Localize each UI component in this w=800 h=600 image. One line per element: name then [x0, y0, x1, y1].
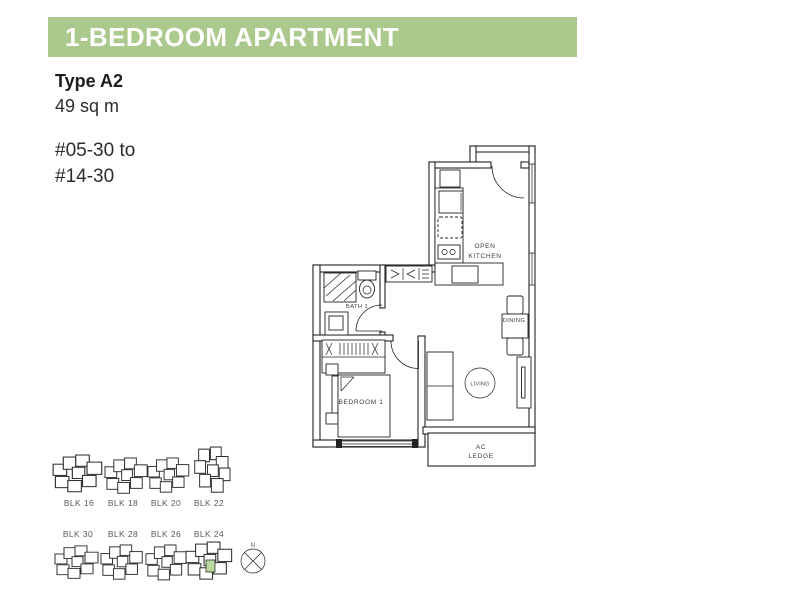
tv-console [517, 357, 531, 408]
room-label-bedroom: BEDROOM 1 [339, 399, 384, 406]
compass-north-label: N [251, 543, 256, 549]
block-label-blk-28: BLK 28 [108, 529, 138, 539]
room-label-kitchen-2: KITCHEN [468, 253, 501, 260]
room-label-living: LIVING [470, 382, 489, 388]
brochure-page: 1-BEDROOM APARTMENT Type A2 49 sq m #05-… [0, 0, 800, 600]
block-label-blk-30: BLK 30 [63, 529, 93, 539]
block-label-blk-20: BLK 20 [151, 498, 181, 508]
block-icon-blk-16 [53, 455, 102, 492]
toilet [358, 271, 376, 298]
block-label-blk-18: BLK 18 [108, 498, 138, 508]
block-icon-blk-18 [105, 458, 147, 493]
room-label-ac-2: LEDGE [468, 453, 493, 460]
entry-door [492, 166, 524, 198]
site-map: BLK 16 BLK 18 BLK 20 BLK 22 BLK 30 BLK 2… [40, 438, 290, 598]
room-label-bath: BATH 1 [346, 304, 368, 310]
dining-set [502, 296, 528, 355]
unit-range-line1: #05-30 to [55, 140, 135, 162]
bath-sink [325, 312, 348, 335]
block-icon-blk-30 [55, 546, 98, 578]
storage-cabinet [427, 352, 453, 420]
block-label-blk-24: BLK 24 [194, 529, 224, 539]
block-label-blk-26: BLK 26 [151, 529, 181, 539]
kitchen-counter [435, 170, 503, 285]
unit-area: 49 sq m [55, 96, 119, 117]
page-title: 1-BEDROOM APARTMENT [65, 22, 399, 52]
floor-plan: OPEN KITCHEN BATH 1 DINING LIVING BEDROO… [300, 130, 570, 480]
shower [324, 273, 356, 302]
room-label-kitchen-1: OPEN [474, 243, 495, 250]
compass-icon: N [241, 543, 265, 573]
block-icon-blk-26 [146, 545, 186, 580]
louver-vent [386, 266, 432, 282]
unit-type: Type A2 [55, 71, 123, 92]
unit-location-highlight [206, 560, 215, 572]
room-label-dining: DINING [503, 318, 526, 324]
page-title-bar: 1-BEDROOM APARTMENT [48, 17, 577, 57]
block-icon-blk-22 [195, 447, 230, 492]
bedroom-door [391, 341, 419, 369]
block-icon-blk-20 [148, 458, 189, 492]
room-label-ac-1: AC [476, 444, 486, 451]
unit-range-line2: #14-30 [55, 166, 114, 188]
block-label-blk-22: BLK 22 [194, 498, 224, 508]
block-label-blk-16: BLK 16 [64, 498, 94, 508]
block-icon-blk-28 [101, 545, 142, 579]
